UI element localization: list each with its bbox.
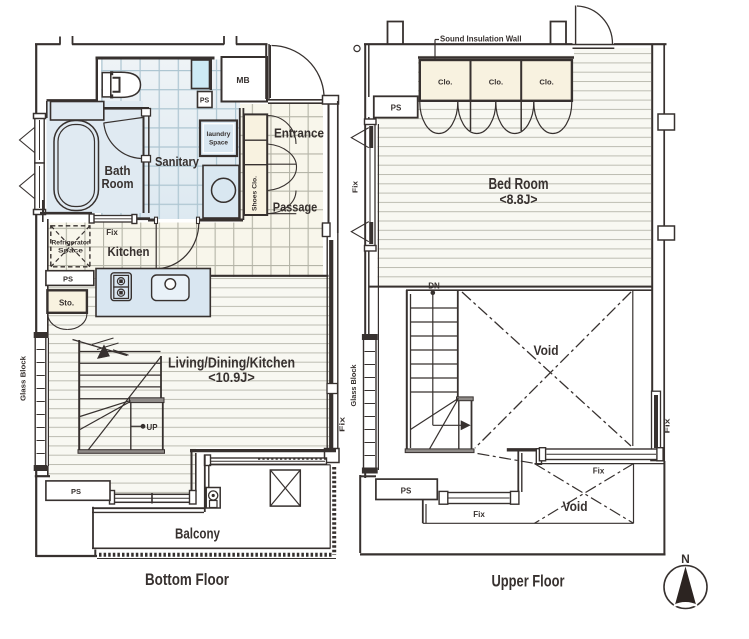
svg-text:Upper Floor: Upper Floor	[492, 573, 565, 591]
svg-text:Balcony: Balcony	[175, 527, 220, 543]
svg-text:Bath: Bath	[105, 164, 131, 178]
svg-text:MB: MB	[236, 75, 249, 85]
svg-text:Fix: Fix	[351, 180, 360, 193]
svg-text:N: N	[681, 552, 690, 566]
svg-text:Fix: Fix	[473, 510, 485, 519]
svg-text:Shoes Clo.: Shoes Clo.	[252, 176, 259, 211]
svg-text:PS: PS	[63, 275, 73, 284]
svg-text:Clo.: Clo.	[539, 78, 553, 87]
svg-text:PS: PS	[71, 487, 81, 496]
svg-text:Void: Void	[563, 498, 588, 514]
svg-text:Bottom Floor: Bottom Floor	[145, 571, 229, 589]
svg-text:Glass Block: Glass Block	[349, 364, 358, 407]
svg-text:<8.8J>: <8.8J>	[500, 192, 538, 207]
svg-text:<10.9J>: <10.9J>	[208, 369, 255, 385]
svg-text:Room: Room	[102, 177, 134, 191]
svg-text:Entrance: Entrance	[274, 126, 324, 141]
svg-text:PS: PS	[200, 98, 210, 105]
svg-text:Passage: Passage	[273, 200, 318, 215]
svg-text:PS: PS	[391, 104, 402, 113]
svg-text:Glass Block: Glass Block	[19, 355, 28, 401]
svg-text:Clo.: Clo.	[489, 78, 503, 87]
svg-text:Fix: Fix	[338, 416, 347, 432]
svg-text:UP: UP	[147, 422, 158, 432]
svg-text:Space: Space	[58, 248, 83, 255]
svg-text:Refrigerator: Refrigerator	[52, 240, 90, 247]
svg-text:Sanitary: Sanitary	[155, 155, 199, 169]
svg-text:DN: DN	[428, 281, 440, 290]
svg-text:Space: Space	[209, 140, 228, 147]
svg-text:Sto.: Sto.	[59, 299, 74, 308]
svg-text:Bed Room: Bed Room	[489, 176, 549, 193]
svg-text:laundry: laundry	[207, 131, 231, 138]
svg-text:Kitchen: Kitchen	[108, 244, 150, 259]
svg-text:Fix: Fix	[663, 417, 672, 433]
svg-text:Clo.: Clo.	[438, 78, 452, 87]
svg-text:Void: Void	[534, 342, 559, 358]
svg-text:Sound Insulation Wall: Sound Insulation Wall	[440, 34, 522, 44]
svg-text:PS: PS	[401, 487, 412, 496]
svg-text:Fix: Fix	[106, 228, 118, 237]
svg-text:Fix: Fix	[593, 467, 605, 476]
